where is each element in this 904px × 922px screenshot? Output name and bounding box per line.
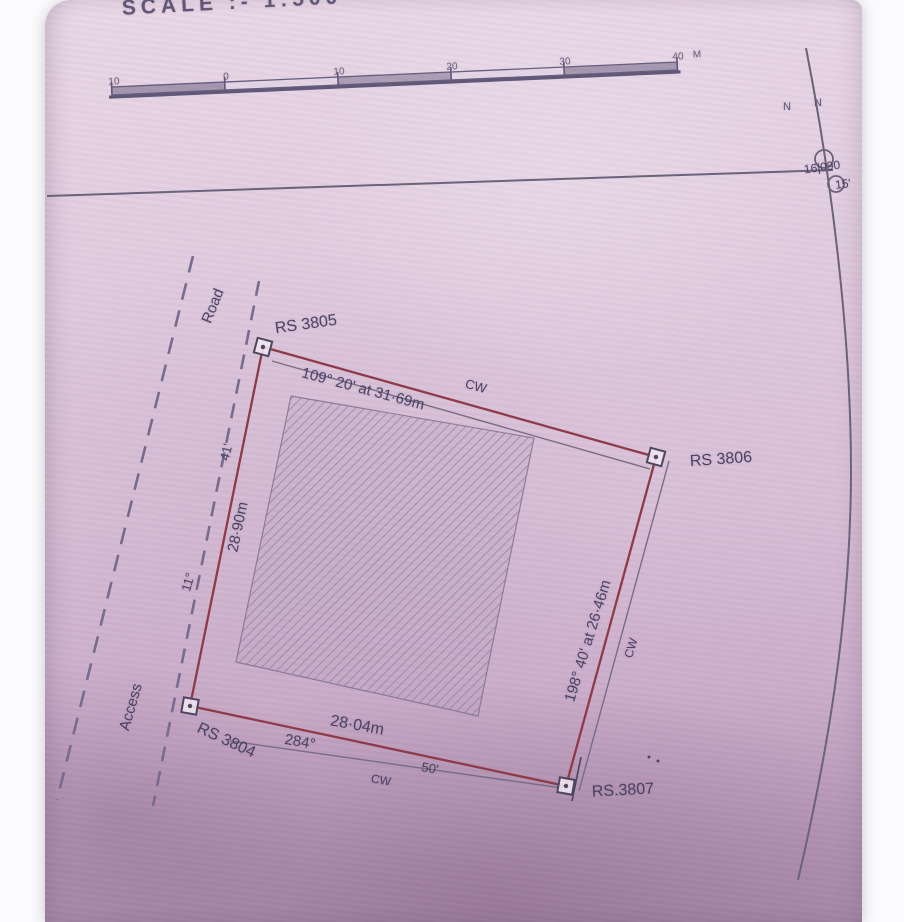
scale-bar-tick-label: 40 bbox=[672, 51, 684, 62]
scale-bar-tick-label: 10 bbox=[333, 66, 345, 77]
corner-marker-rs3806 bbox=[647, 448, 665, 466]
north-label-right: N bbox=[814, 97, 822, 109]
corner-marker-rs3805 bbox=[254, 338, 272, 356]
north-note-2: 15' bbox=[834, 176, 851, 192]
minutes-bottom: 50' bbox=[420, 759, 439, 777]
scale-bar-unit-label: M bbox=[693, 49, 702, 60]
building-hatch bbox=[236, 396, 534, 716]
scale-bar-tick-label: 0 bbox=[223, 71, 229, 82]
scale-bar bbox=[108, 57, 680, 97]
corner-marker-rs3807 bbox=[557, 777, 574, 794]
survey-drawing bbox=[0, 0, 904, 922]
scale-bar-tick-label: 10 bbox=[108, 76, 120, 87]
north-label-left: N bbox=[783, 101, 791, 113]
corner-marker-rs3804 bbox=[181, 697, 198, 714]
scale-bar-tick-label: 30 bbox=[559, 56, 571, 67]
scale-bar-tick-label: 20 bbox=[446, 61, 458, 72]
frame-line bbox=[47, 170, 833, 196]
photo-canvas: SCALE :- 1:500 10 0 10 20 30 40 M N N 16… bbox=[0, 0, 904, 922]
corner-label-rs3807: RS.3807 bbox=[591, 780, 654, 801]
